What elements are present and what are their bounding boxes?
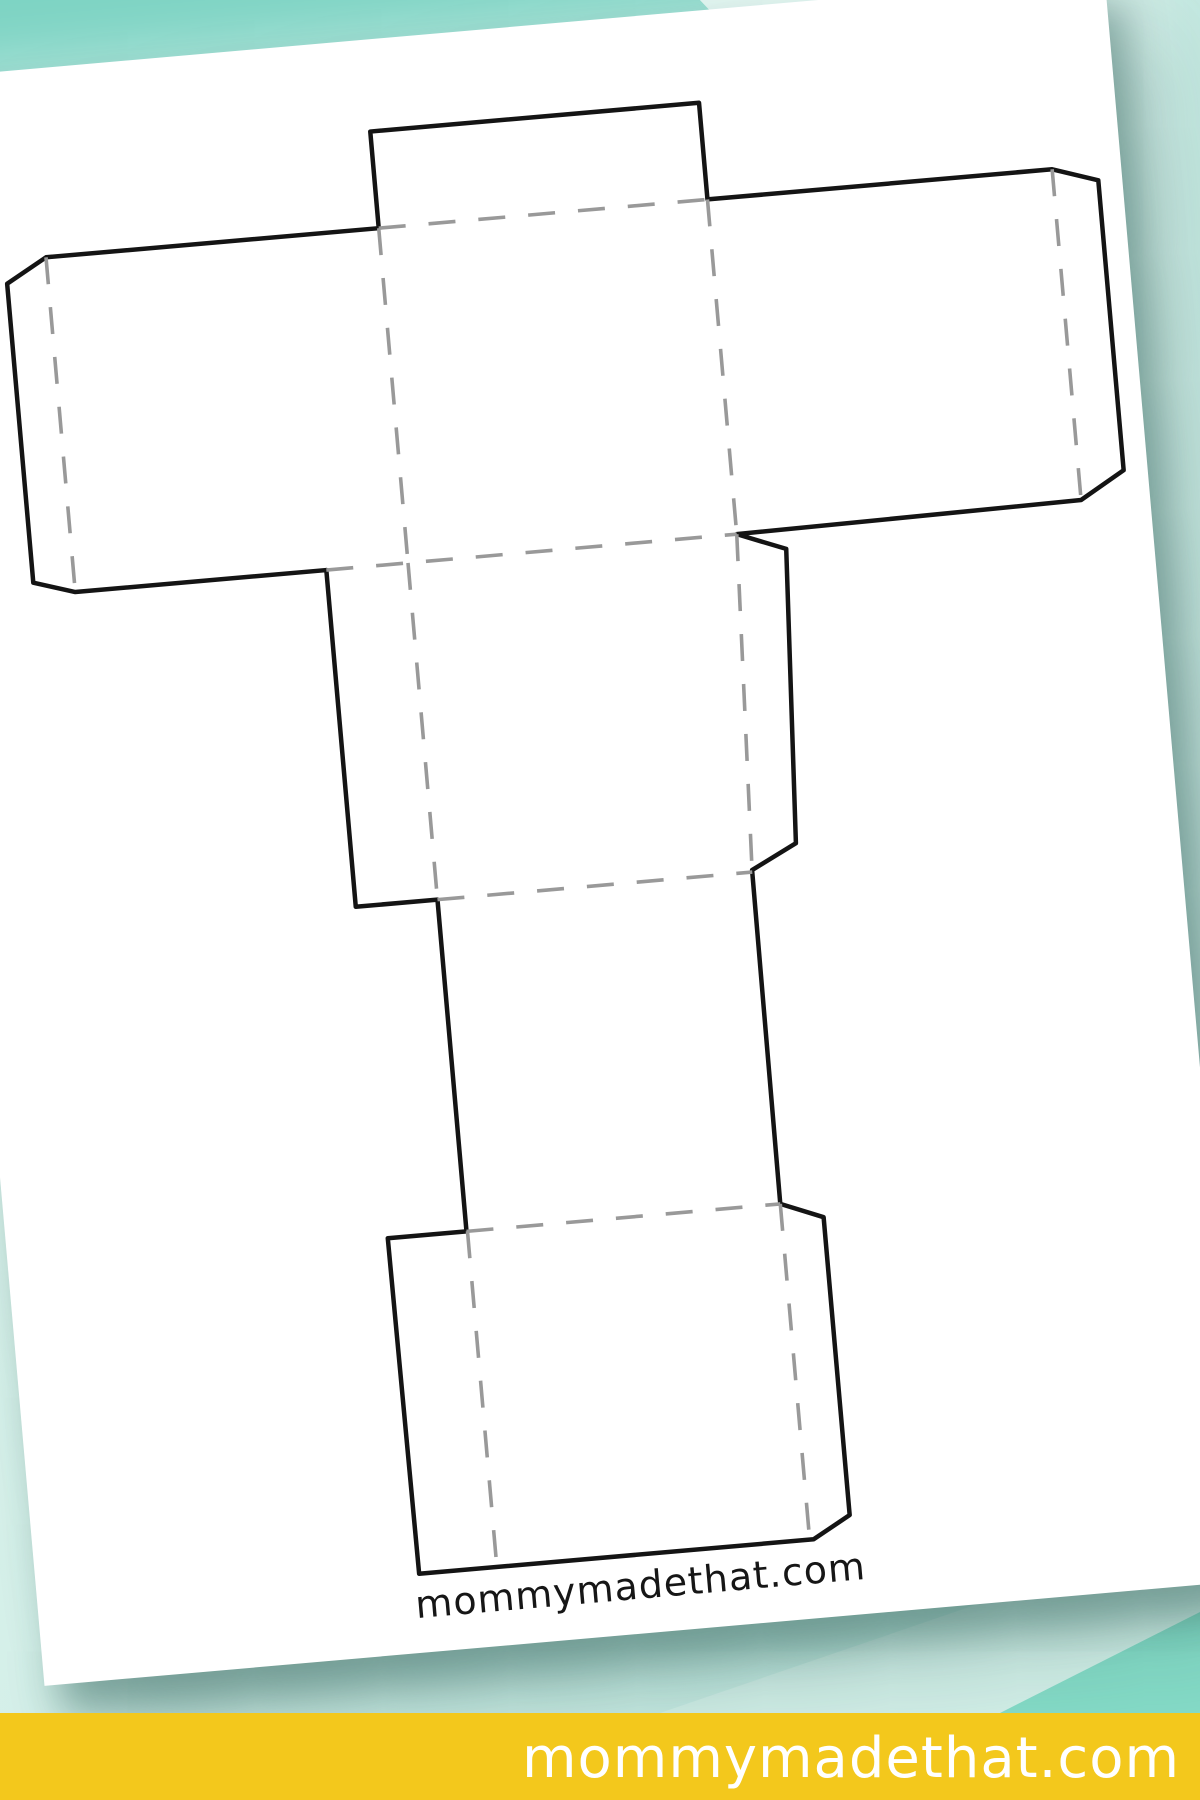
fold-line — [379, 228, 408, 563]
screenshot-root: mommymadethat.com mommymadethat.com — [0, 0, 1200, 1800]
fold-line — [707, 199, 736, 534]
fold-line — [467, 1231, 496, 1567]
template-folds — [46, 169, 1169, 1596]
fold-line — [466, 1204, 780, 1231]
fold-line — [46, 257, 75, 592]
printable-paper-sheet: mommymadethat.com — [0, 0, 1200, 1686]
template-cut-outline — [0, 69, 1200, 1600]
fold-line — [437, 872, 752, 900]
fold-line — [379, 199, 708, 228]
fold-line — [326, 534, 736, 570]
footer-bar: mommymadethat.com — [0, 1713, 1200, 1800]
footer-site-text: mommymadethat.com — [522, 1713, 1180, 1800]
fold-line — [1052, 169, 1081, 500]
fold-line — [408, 563, 437, 900]
fold-line — [723, 534, 766, 870]
template-svg — [0, 0, 1200, 1686]
fold-line — [780, 1204, 809, 1537]
